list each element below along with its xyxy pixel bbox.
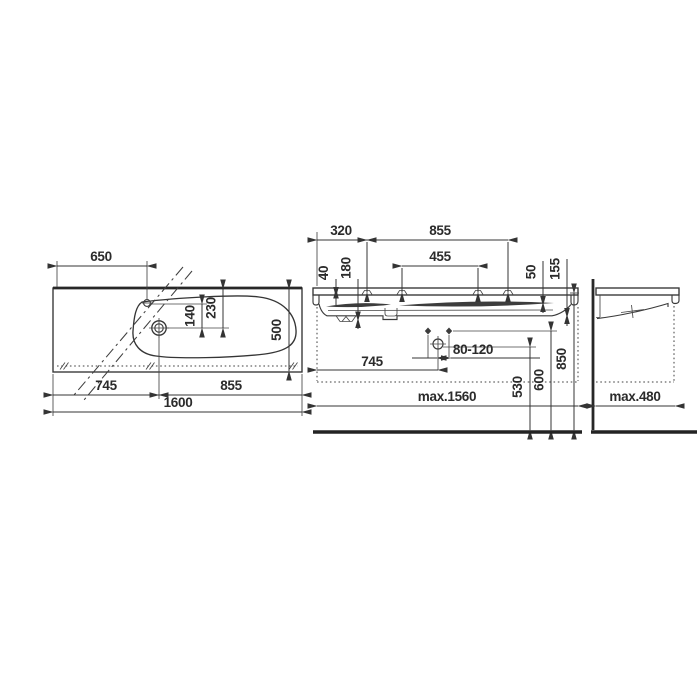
dim-label-230: 230 [204, 297, 219, 319]
dim-label-140: 140 [183, 305, 198, 327]
plan-view: 650 140 230 500 745 855 1600 [53, 249, 302, 416]
dim-label-455: 455 [429, 249, 451, 264]
dim-745-front: 745 [317, 354, 438, 370]
dim-label-1600: 1600 [164, 395, 193, 410]
tap-hole-marks [362, 291, 513, 295]
wall-bracket-detail [596, 295, 600, 318]
dim-650: 650 [57, 249, 147, 300]
drain-outlet-symbol [430, 336, 446, 370]
dim-180: 180 [339, 257, 359, 329]
slab-outline [313, 288, 578, 295]
dim-500: 500 [269, 289, 289, 371]
dim-label-855-front: 855 [429, 223, 451, 238]
dim-label-530: 530 [510, 376, 525, 398]
fixing-hole-symbols [425, 328, 452, 359]
dim-label-max-1560: max.1560 [418, 389, 476, 404]
dim-label-500: 500 [269, 319, 284, 341]
slab-side-front-cap [672, 295, 679, 304]
bowl-bottom-right [399, 301, 554, 306]
dim-label-650: 650 [90, 249, 112, 264]
dim-label-180: 180 [339, 257, 354, 279]
dim-label-50: 50 [524, 265, 539, 279]
dim-600: 600 [532, 331, 552, 430]
dim-label-80-120: 80-120 [453, 342, 493, 357]
drawing-canvas: 650 140 230 500 745 855 1600 [0, 0, 700, 700]
dim-50: 50 [524, 261, 544, 313]
slab-left-cap [313, 295, 319, 305]
front-view: 320 855 455 40 180 50 155 [313, 223, 582, 432]
dim-label-320: 320 [330, 223, 352, 238]
dim-label-155: 155 [548, 257, 563, 279]
dim-label-745-plan: 745 [95, 378, 117, 393]
technical-drawing: 650 140 230 500 745 855 1600 [0, 0, 700, 700]
dim-label-850: 850 [554, 348, 569, 370]
dim-530: 530 [510, 347, 530, 430]
dim-label-40: 40 [316, 266, 331, 280]
drain-trap-detail [336, 316, 356, 322]
dim-label-600: 600 [532, 369, 547, 391]
basin-inner-line [328, 310, 553, 311]
dim-label-max-480: max.480 [609, 389, 660, 404]
basin-top-outline [53, 288, 302, 372]
dim-745-855-1600: 745 855 1600 [53, 336, 302, 416]
slab-side-outline [596, 288, 679, 295]
side-view: max.480 [591, 279, 697, 432]
center-tab-detail [385, 308, 397, 316]
dim-max-480: max.480 [596, 389, 675, 406]
dim-label-745-front: 745 [361, 354, 383, 369]
tap-hole-symbol [149, 318, 169, 338]
dim-230: 230 [204, 289, 224, 328]
dim-label-855-plan: 855 [220, 378, 242, 393]
